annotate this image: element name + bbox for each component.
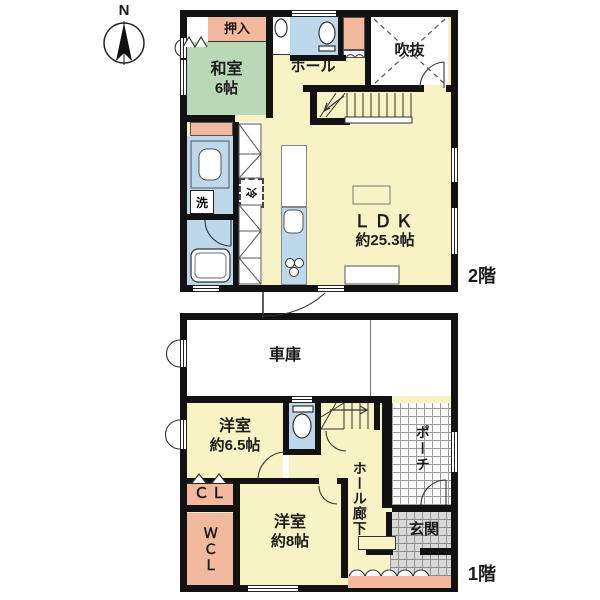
f1-room8-window — [248, 585, 298, 592]
f1-wall — [287, 449, 321, 455]
f2-wall — [310, 118, 350, 125]
f2-wall — [266, 17, 273, 118]
f2-niche — [187, 17, 208, 42]
f1-wall — [420, 548, 451, 555]
cl-label: ＣＬ — [189, 484, 233, 505]
f2-window-bottom-2 — [193, 285, 219, 292]
washitsu-size: 6帖 — [215, 80, 238, 99]
f1-wall — [382, 396, 392, 508]
f2-kitchen-island — [281, 145, 307, 207]
f2-closet-top — [343, 17, 365, 50]
f2-window-right-1 — [451, 148, 458, 182]
compass-icon — [104, 21, 144, 65]
f2-window-left-door — [180, 38, 187, 58]
washitsu-label: 和室 6帖 — [187, 56, 266, 102]
room8-size: 約8帖 — [271, 533, 309, 552]
f1-garage-room — [187, 320, 451, 396]
room8-name: 洋室 — [274, 513, 306, 533]
f2-window-bottom-1 — [318, 285, 344, 292]
hall-label: ホール — [276, 57, 350, 77]
genkan-label: 玄関 — [400, 520, 448, 541]
floor2-label: 2階 — [460, 265, 504, 287]
ldk-size: 約25.3帖 — [355, 232, 414, 251]
f2-window-washitsu — [180, 60, 187, 95]
void-label: 吹抜 — [371, 41, 448, 61]
f1-porch-opening — [451, 432, 458, 472]
f1-garage-divider — [370, 320, 371, 396]
f2-wall — [303, 85, 424, 92]
f1-wall — [392, 505, 451, 512]
washitsu-name: 和室 — [210, 60, 242, 80]
room65-name: 洋室 — [219, 417, 251, 437]
floorplan-canvas: N 冷 洗 — [0, 0, 600, 600]
f2-fridge-box: 冷 — [239, 178, 264, 208]
f2-washer-box: 洗 — [190, 190, 214, 214]
f2-linen-closet — [190, 122, 233, 136]
f1-entry-step — [348, 576, 451, 590]
garage-label: 車庫 — [255, 345, 315, 367]
f2-toilet-room — [290, 17, 340, 55]
f1-room65-door-gap — [283, 455, 289, 478]
room65-label: 洋室 約6.5帖 — [187, 412, 283, 460]
f1-room65-side-door — [180, 420, 187, 449]
f1-toilet-window — [292, 396, 312, 403]
f1-wall — [185, 505, 233, 512]
ldk-name: ＬＤＫ — [354, 211, 417, 232]
compass-north-label: N — [110, 2, 138, 20]
washer-label: 洗 — [196, 194, 208, 211]
f2-basin-niche — [273, 17, 290, 55]
room8-label: 洋室 約8帖 — [240, 508, 340, 556]
hall-corridor-label: ホール廊下 — [348, 452, 370, 544]
f1-wall — [374, 403, 380, 430]
f1-wall — [315, 403, 321, 450]
f1-wall — [341, 484, 348, 578]
porch-label: ポーチ — [411, 418, 433, 480]
f2-wall — [187, 214, 233, 220]
f1-toilet-room — [289, 403, 315, 450]
wcl-label: ＷＣＬ — [193, 520, 227, 580]
f2-wall — [338, 17, 343, 61]
f2-window-top — [292, 10, 336, 17]
room65-size: 約6.5帖 — [210, 437, 261, 456]
f1-wall — [187, 396, 392, 403]
floor1-label: 1階 — [460, 563, 504, 585]
f1-garage-side-door — [180, 340, 187, 367]
fridge-label: 冷 — [244, 188, 260, 199]
f1-wall — [283, 403, 289, 455]
f2-kitchen-counter — [281, 207, 307, 285]
f2-wall — [187, 115, 235, 122]
oshiire-label: 押入 — [208, 19, 266, 39]
f1-wall — [233, 483, 240, 585]
ldk-label: ＬＤＫ 約25.3帖 — [325, 208, 445, 254]
f2-wall — [446, 85, 451, 92]
f2-window-right-2 — [451, 208, 458, 254]
f2-bathroom — [187, 220, 233, 285]
